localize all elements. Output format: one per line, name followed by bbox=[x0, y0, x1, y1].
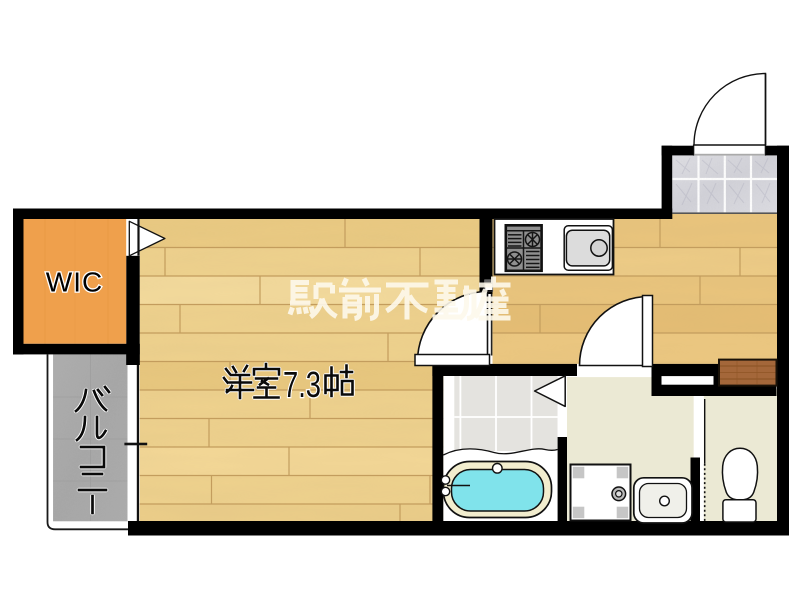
svg-text:WIC: WIC bbox=[46, 267, 103, 298]
svg-text:7.3: 7.3 bbox=[283, 364, 321, 405]
